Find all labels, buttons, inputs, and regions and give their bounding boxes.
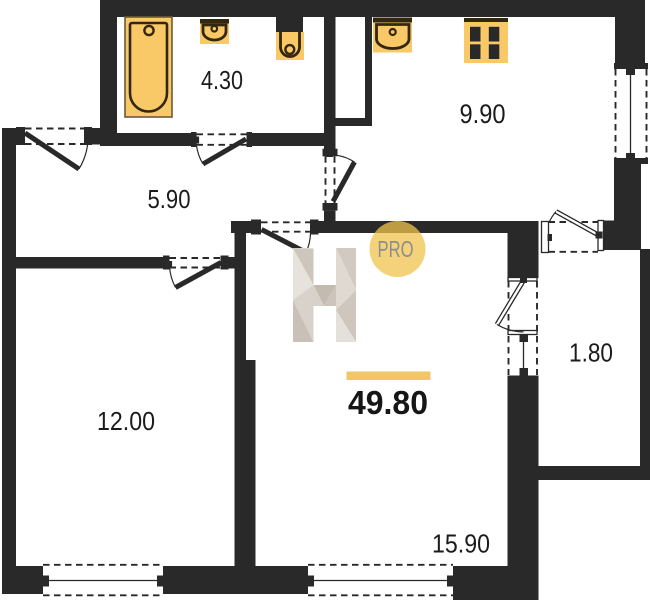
svg-text:15.90: 15.90 <box>432 529 490 559</box>
svg-text:9.90: 9.90 <box>460 99 506 129</box>
svg-text:4.30: 4.30 <box>201 65 243 95</box>
svg-text:1.80: 1.80 <box>569 338 613 368</box>
svg-text:5.90: 5.90 <box>148 184 191 214</box>
svg-text:49.80: 49.80 <box>348 384 428 421</box>
svg-text:PRO: PRO <box>378 236 414 262</box>
svg-text:12.00: 12.00 <box>97 406 155 436</box>
